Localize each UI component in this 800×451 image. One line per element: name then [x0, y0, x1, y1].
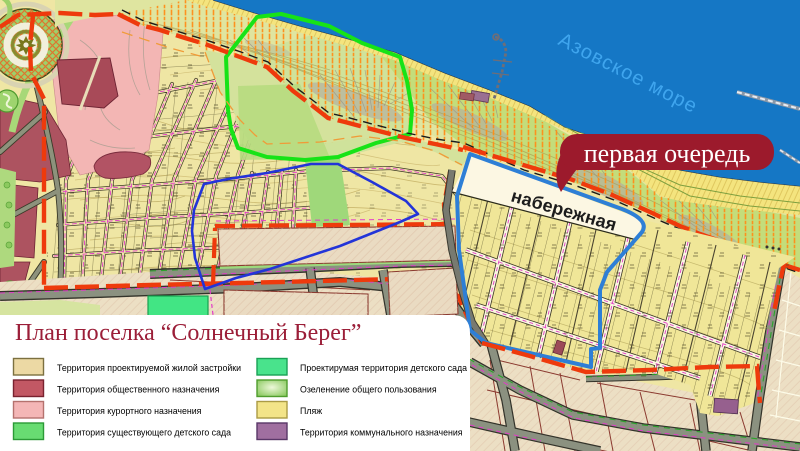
svg-text:Озеленение общего пользования: Озеленение общего пользования — [300, 385, 437, 395]
svg-text:Территория коммунального назна: Территория коммунального назначения — [300, 428, 463, 438]
svg-text:Территория общественного назна: Территория общественного назначения — [57, 385, 220, 395]
svg-text:Территория проектируемой жилой: Территория проектируемой жилой застройки — [57, 363, 241, 373]
svg-text:Проектирумая территория детско: Проектирумая территория детского сада — [300, 363, 467, 373]
svg-text:План поселка “Солнечный Берег”: План поселка “Солнечный Берег” — [15, 320, 361, 346]
svg-text:Территория курортного назначен: Территория курортного назначения — [57, 406, 202, 416]
svg-text:Пляж: Пляж — [300, 406, 322, 416]
svg-text:первая очередь: первая очередь — [584, 139, 751, 168]
svg-text:Территория существующего детск: Территория существующего детского сада — [57, 428, 231, 438]
